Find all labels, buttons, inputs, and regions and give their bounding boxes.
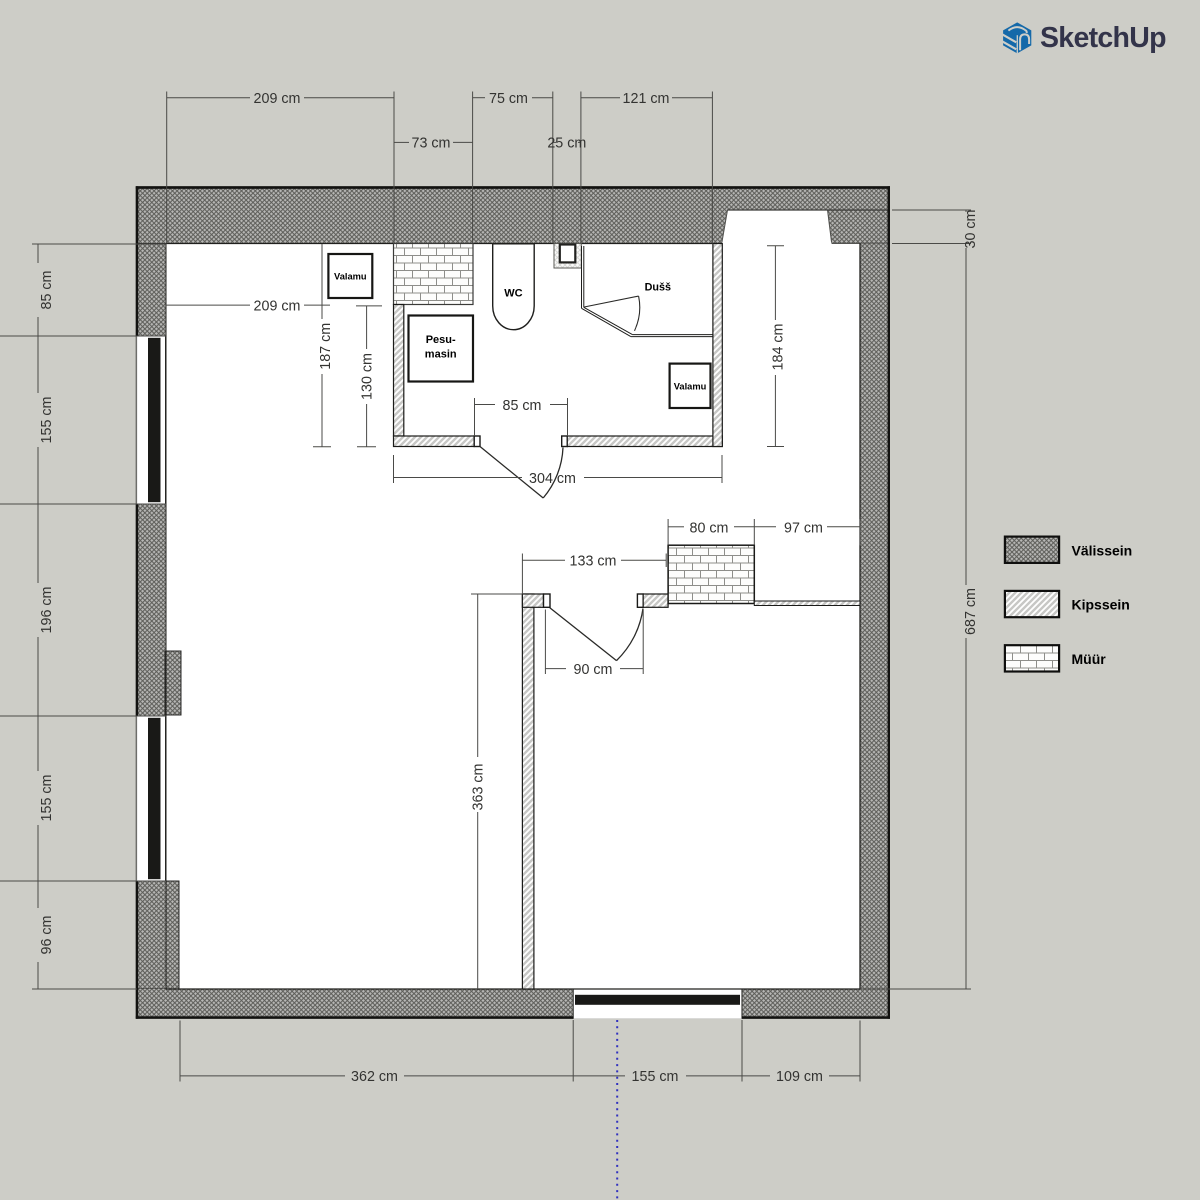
svg-text:184 cm: 184 cm	[771, 324, 787, 371]
svg-text:304 cm: 304 cm	[529, 471, 576, 487]
svg-text:121 cm: 121 cm	[623, 91, 670, 107]
svg-text:155 cm: 155 cm	[39, 397, 55, 444]
svg-text:155 cm: 155 cm	[39, 775, 55, 822]
svg-text:masin: masin	[425, 349, 457, 361]
svg-text:196 cm: 196 cm	[39, 587, 55, 634]
svg-text:Müür: Müür	[1072, 651, 1107, 667]
svg-text:Kipssein: Kipssein	[1072, 597, 1130, 613]
svg-text:97 cm: 97 cm	[784, 520, 823, 536]
svg-text:133 cm: 133 cm	[570, 554, 617, 570]
svg-text:30 cm: 30 cm	[963, 210, 979, 249]
svg-text:687 cm: 687 cm	[963, 588, 979, 635]
svg-text:WC: WC	[504, 288, 522, 300]
svg-text:73 cm: 73 cm	[412, 136, 451, 152]
svg-text:Pesu-: Pesu-	[426, 334, 456, 346]
svg-text:362 cm: 362 cm	[351, 1069, 398, 1085]
svg-text:Välissein: Välissein	[1072, 542, 1133, 558]
svg-text:SketchUp: SketchUp	[1040, 22, 1166, 54]
svg-text:80 cm: 80 cm	[690, 520, 729, 536]
svg-text:25 cm: 25 cm	[547, 136, 586, 152]
svg-text:Dušš: Dušš	[645, 282, 671, 294]
svg-text:90 cm: 90 cm	[574, 662, 613, 678]
svg-text:85 cm: 85 cm	[39, 271, 55, 310]
svg-text:75 cm: 75 cm	[489, 91, 528, 107]
svg-text:209 cm: 209 cm	[254, 298, 301, 314]
svg-text:209 cm: 209 cm	[254, 91, 301, 107]
svg-text:155 cm: 155 cm	[632, 1069, 679, 1085]
svg-text:363 cm: 363 cm	[471, 764, 487, 811]
svg-text:109 cm: 109 cm	[776, 1069, 823, 1085]
svg-text:Valamu: Valamu	[674, 382, 707, 392]
svg-text:187 cm: 187 cm	[318, 323, 334, 370]
svg-text:Valamu: Valamu	[334, 272, 367, 282]
svg-text:96 cm: 96 cm	[39, 916, 55, 955]
svg-text:130 cm: 130 cm	[360, 353, 376, 400]
svg-text:85 cm: 85 cm	[503, 398, 542, 414]
